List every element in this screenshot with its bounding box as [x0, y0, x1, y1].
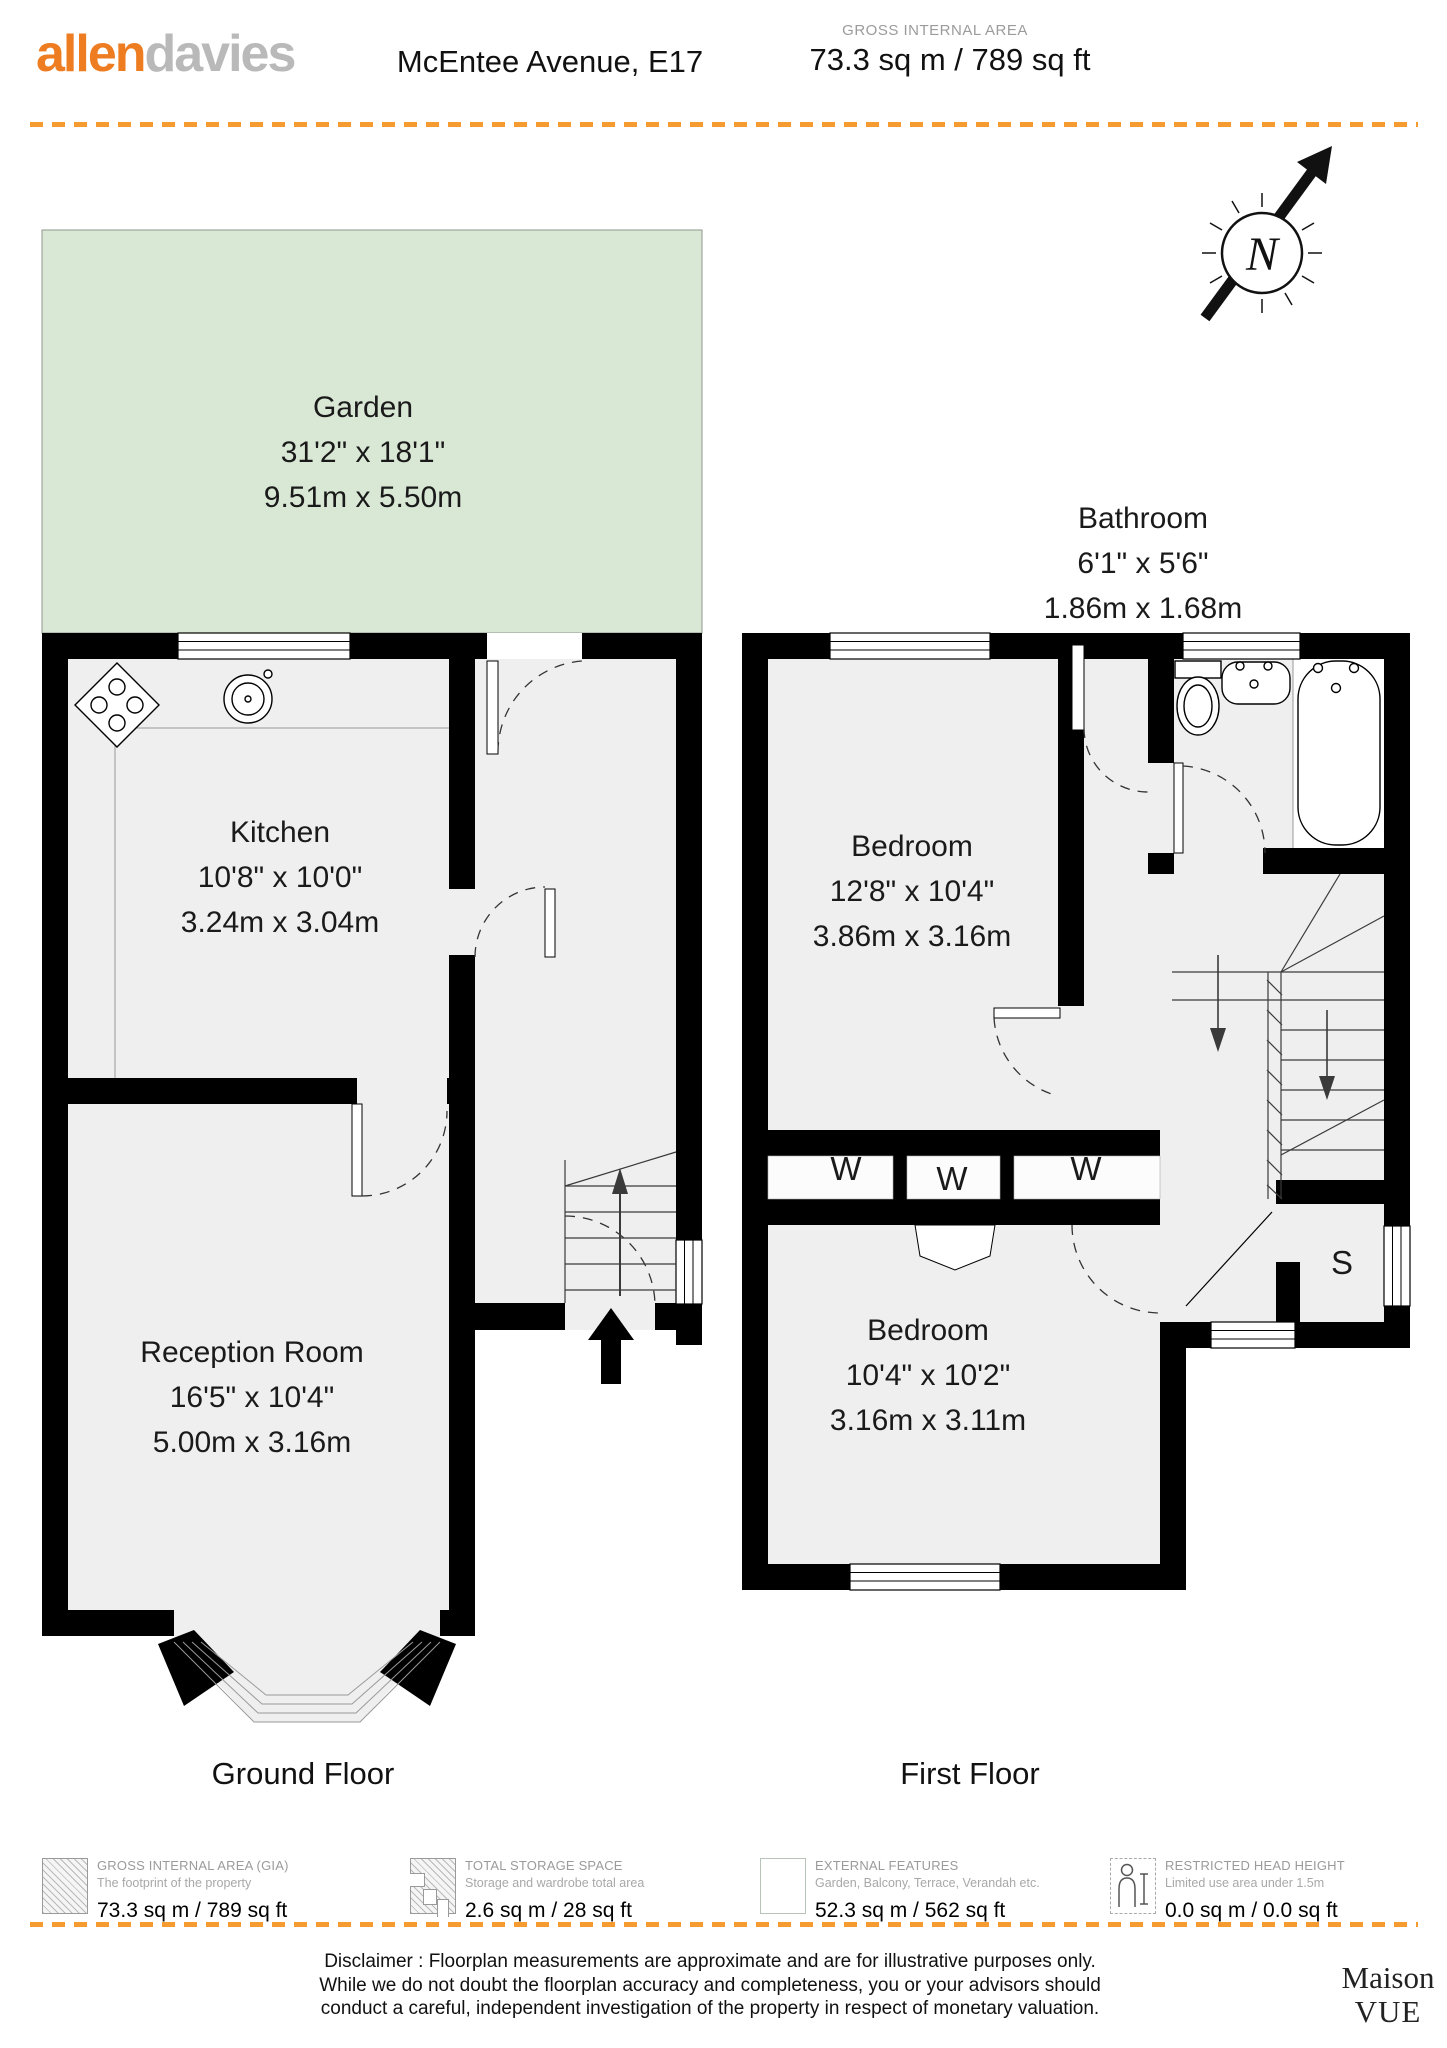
reception-metric: 5.00m x 3.16m — [140, 1420, 363, 1465]
legend-external: EXTERNAL FEATURES Garden, Balcony, Terra… — [760, 1858, 1040, 1923]
bedroom1-window — [830, 633, 990, 659]
first-floor-caption: First Floor — [900, 1756, 1040, 1792]
bedroom1-name: Bedroom — [813, 824, 1011, 869]
basin-icon — [1222, 662, 1290, 704]
kitchen-window — [178, 633, 350, 659]
legend-storage-subtitle: Storage and wardrobe total area — [465, 1876, 644, 1890]
kitchen-metric: 3.24m x 3.04m — [181, 900, 379, 945]
legend-gia-subtitle: The footprint of the property — [97, 1876, 289, 1890]
disclaimer-line1: Disclaimer : Floorplan measurements are … — [319, 1950, 1101, 1974]
bathroom-name: Bathroom — [1044, 496, 1242, 541]
kitchen-label: Kitchen 10'8" x 10'0" 3.24m x 3.04m — [181, 810, 379, 945]
legend-external-title: EXTERNAL FEATURES — [815, 1858, 1040, 1873]
floorplan-page: allendavies McEntee Avenue, E17 GROSS IN… — [0, 0, 1447, 2048]
bathroom-metric: 1.86m x 1.68m — [1044, 586, 1242, 631]
legend-head-height-value: 0.0 sq m / 0.0 sq ft — [1165, 1899, 1345, 1923]
front-sidelight-window — [676, 1240, 702, 1304]
bedroom2-window — [850, 1564, 1000, 1590]
legend-storage-title: TOTAL STORAGE SPACE — [465, 1858, 644, 1873]
legend-external-subtitle: Garden, Balcony, Terrace, Verandah etc. — [815, 1876, 1040, 1890]
bedroom1-imperial: 12'8" x 10'4" — [813, 869, 1011, 914]
bathtub-icon — [1298, 661, 1380, 845]
garden-name: Garden — [264, 385, 462, 430]
bedroom1-metric: 3.86m x 3.16m — [813, 914, 1011, 959]
hatch-diagonal-icon — [42, 1858, 88, 1914]
bedroom2-label: Bedroom 10'4" x 10'2" 3.16m x 3.11m — [830, 1308, 1026, 1443]
garden-imperial: 31'2" x 18'1" — [264, 430, 462, 475]
bedroom2-metric: 3.16m x 3.11m — [830, 1398, 1026, 1443]
bedroom2-name: Bedroom — [830, 1308, 1026, 1353]
toilet-icon — [1175, 661, 1221, 735]
person-height-icon — [1110, 1858, 1156, 1914]
floorplan-drawing: N — [0, 0, 1447, 2048]
bathroom-label: Bathroom 6'1" x 5'6" 1.86m x 1.68m — [1044, 496, 1242, 631]
reception-imperial: 16'5" x 10'4" — [140, 1375, 363, 1420]
disclaimer-line2: While we do not doubt the floorplan accu… — [319, 1974, 1101, 1998]
storage-window — [1384, 1226, 1410, 1306]
legend-storage-value: 2.6 sq m / 28 sq ft — [465, 1899, 644, 1923]
reception-label: Reception Room 16'5" x 10'4" 5.00m x 3.1… — [140, 1330, 363, 1465]
garden-metric: 9.51m x 5.50m — [264, 475, 462, 520]
legend-gia-title: GROSS INTERNAL AREA (GIA) — [97, 1858, 289, 1873]
legend-external-value: 52.3 sq m / 562 sq ft — [815, 1899, 1040, 1923]
reception-name: Reception Room — [140, 1330, 363, 1375]
kitchen-name: Kitchen — [181, 810, 379, 855]
bedroom1-label: Bedroom 12'8" x 10'4" 3.86m x 3.16m — [813, 824, 1011, 959]
legend-head-height-subtitle: Limited use area under 1.5m — [1165, 1876, 1345, 1890]
grid-icon — [760, 1858, 806, 1914]
wardrobe2-label: W — [936, 1160, 967, 1198]
compass-icon: N — [1202, 146, 1332, 318]
legend-gia: GROSS INTERNAL AREA (GIA) The footprint … — [42, 1858, 289, 1923]
kitchen-imperial: 10'8" x 10'0" — [181, 855, 379, 900]
bathroom-window — [1183, 633, 1300, 659]
wardrobe1-label: W — [830, 1150, 861, 1188]
maison-vue-logo-line1: Maison — [1342, 1960, 1435, 1996]
legend-head-height-title: RESTRICTED HEAD HEIGHT — [1165, 1858, 1345, 1873]
legend-head-height: RESTRICTED HEAD HEIGHT Limited use area … — [1110, 1858, 1345, 1923]
disclaimer-line3: conduct a careful, independent investiga… — [319, 1997, 1101, 2021]
legend-gia-value: 73.3 sq m / 789 sq ft — [97, 1899, 289, 1923]
landing-window — [1211, 1322, 1295, 1348]
legend-storage: TOTAL STORAGE SPACE Storage and wardrobe… — [410, 1858, 644, 1923]
bathroom-imperial: 6'1" x 5'6" — [1044, 541, 1242, 586]
garden-label: Garden 31'2" x 18'1" 9.51m x 5.50m — [264, 385, 462, 520]
disclaimer-text: Disclaimer : Floorplan measurements are … — [319, 1950, 1101, 2021]
wardrobe3-label: W — [1070, 1150, 1101, 1188]
first-floor-plan — [742, 633, 1410, 1590]
compass-north-label: N — [1245, 228, 1281, 281]
hatch-storage-icon — [410, 1858, 456, 1914]
maison-vue-logo-line2: VUE — [1355, 1994, 1422, 2030]
storage-label: S — [1331, 1244, 1353, 1282]
bedroom2-imperial: 10'4" x 10'2" — [830, 1353, 1026, 1398]
ground-floor-caption: Ground Floor — [212, 1756, 395, 1792]
orange-dashed-divider-bottom — [30, 1922, 1418, 1927]
